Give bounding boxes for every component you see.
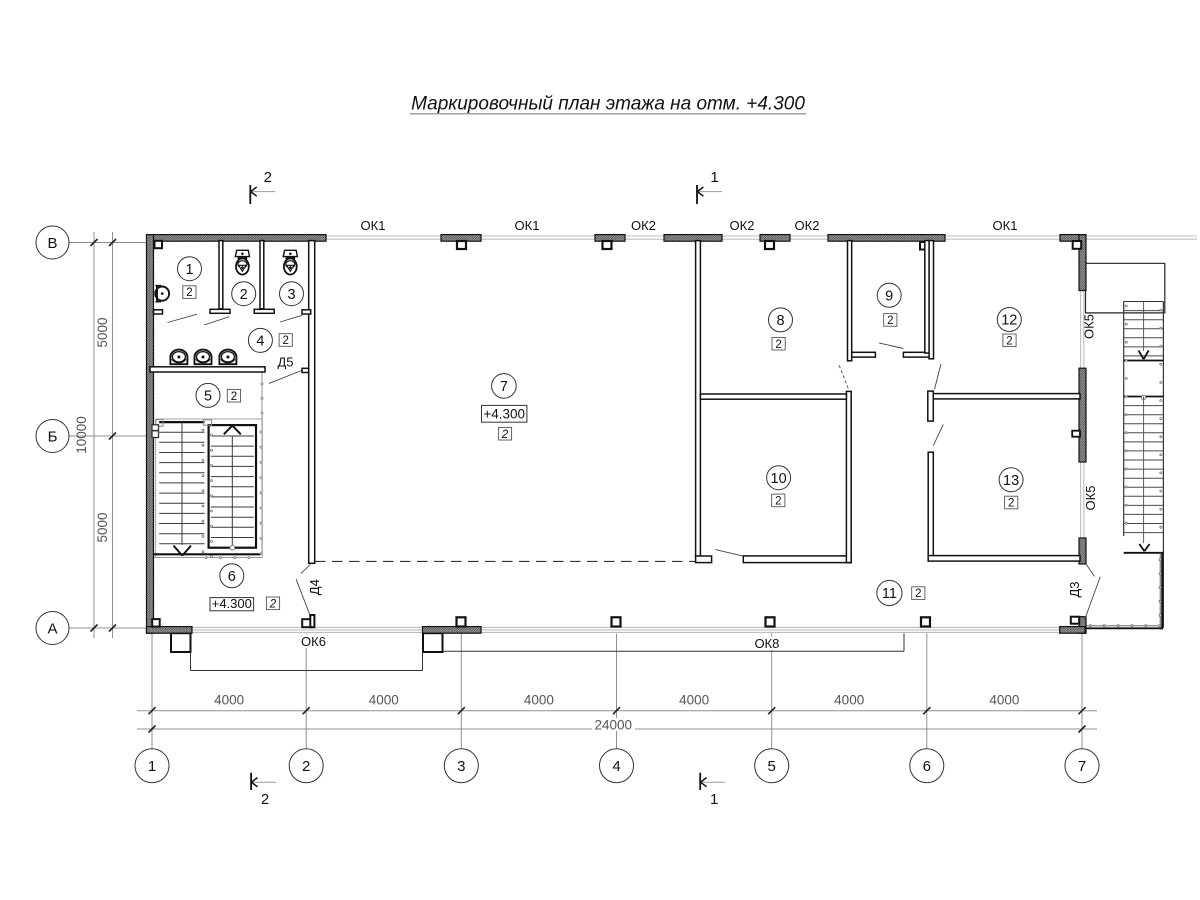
svg-text:ОК6: ОК6 <box>301 634 326 649</box>
svg-text:12: 12 <box>1001 313 1017 329</box>
svg-text:ОК1: ОК1 <box>361 218 386 233</box>
svg-text:10: 10 <box>771 471 787 487</box>
svg-text:24000: 24000 <box>595 718 633 733</box>
svg-text:ОК1: ОК1 <box>515 218 540 233</box>
svg-text:4000: 4000 <box>989 693 1019 708</box>
svg-text:7: 7 <box>500 379 508 395</box>
svg-text:11: 11 <box>882 586 897 602</box>
svg-text:2: 2 <box>282 335 288 347</box>
svg-text:Д4: Д4 <box>307 579 322 595</box>
svg-text:2: 2 <box>775 339 781 351</box>
svg-text:ОК5: ОК5 <box>1082 314 1097 339</box>
svg-text:4000: 4000 <box>679 693 709 708</box>
svg-text:5: 5 <box>768 758 776 775</box>
svg-text:ОК8: ОК8 <box>754 636 779 651</box>
svg-text:5000: 5000 <box>95 512 110 542</box>
svg-text:1: 1 <box>710 791 718 808</box>
svg-text:3: 3 <box>457 758 465 775</box>
svg-text:Д3: Д3 <box>1067 581 1082 597</box>
svg-text:2: 2 <box>269 598 277 610</box>
svg-text:2: 2 <box>887 315 893 327</box>
svg-text:1: 1 <box>710 169 718 186</box>
svg-text:7: 7 <box>1078 758 1086 775</box>
svg-text:1: 1 <box>185 262 193 278</box>
svg-text:9: 9 <box>885 288 893 304</box>
svg-text:2: 2 <box>501 429 509 441</box>
svg-text:Маркировочный план этажа на от: Маркировочный план этажа на отм. +4.300 <box>411 93 805 114</box>
svg-text:10000: 10000 <box>74 416 89 454</box>
svg-text:В: В <box>47 235 57 252</box>
svg-text:6: 6 <box>228 569 236 585</box>
svg-text:2: 2 <box>775 496 781 508</box>
svg-text:Д5: Д5 <box>277 355 293 370</box>
svg-text:2: 2 <box>240 287 248 303</box>
svg-text:+4.300: +4.300 <box>483 407 525 422</box>
svg-text:+4.300: +4.300 <box>212 596 252 611</box>
svg-text:4: 4 <box>256 334 264 350</box>
svg-text:4000: 4000 <box>524 693 554 708</box>
svg-text:ОК5: ОК5 <box>1083 486 1098 511</box>
svg-text:6: 6 <box>923 758 931 775</box>
svg-text:2: 2 <box>915 588 921 600</box>
svg-text:Б: Б <box>48 428 58 445</box>
svg-text:5000: 5000 <box>95 317 110 347</box>
svg-text:ОК2: ОК2 <box>730 218 755 233</box>
svg-text:ОК2: ОК2 <box>631 218 656 233</box>
svg-text:2: 2 <box>264 169 272 186</box>
svg-text:4: 4 <box>612 758 620 775</box>
svg-text:2: 2 <box>1008 498 1014 510</box>
svg-text:А: А <box>47 620 57 637</box>
svg-text:ОК1: ОК1 <box>993 218 1018 233</box>
svg-text:4000: 4000 <box>834 693 864 708</box>
svg-text:5: 5 <box>204 389 212 405</box>
svg-text:1: 1 <box>148 758 156 775</box>
svg-text:13: 13 <box>1003 473 1019 489</box>
svg-text:3: 3 <box>287 287 295 303</box>
svg-text:2: 2 <box>231 391 237 403</box>
svg-text:2: 2 <box>302 758 310 775</box>
svg-text:4000: 4000 <box>369 693 399 708</box>
svg-text:2: 2 <box>261 791 269 808</box>
svg-text:4000: 4000 <box>214 693 244 708</box>
svg-text:8: 8 <box>776 313 784 329</box>
svg-text:2: 2 <box>186 287 192 299</box>
svg-text:ОК2: ОК2 <box>795 218 820 233</box>
svg-text:2: 2 <box>1006 335 1012 347</box>
